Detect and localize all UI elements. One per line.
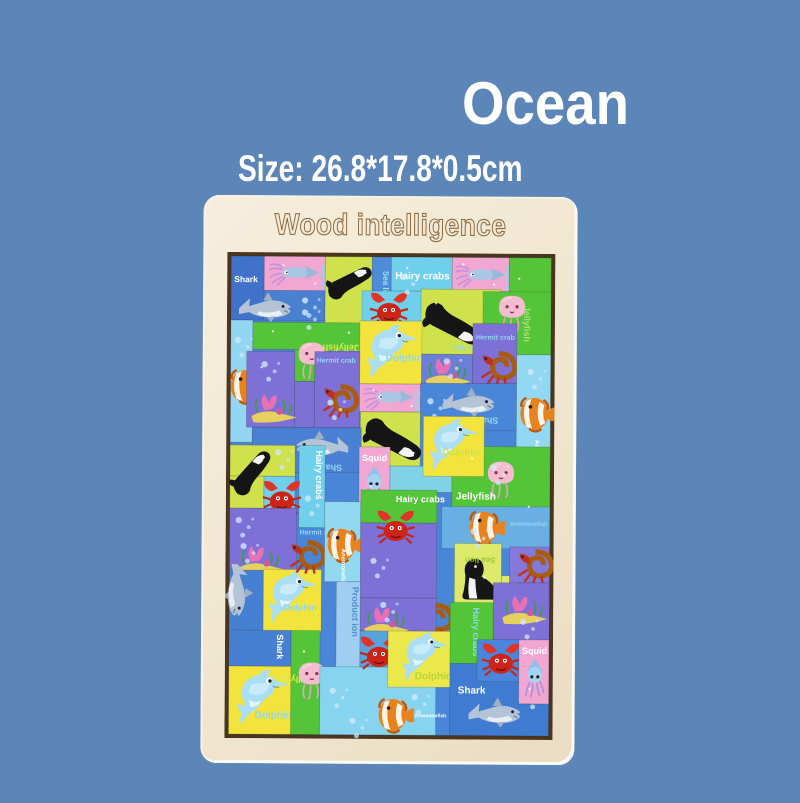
svg-text:Shark: Shark bbox=[275, 634, 285, 660]
svg-text:Jellyfish: Jellyfish bbox=[456, 491, 496, 502]
svg-text:Sea lion: Sea lion bbox=[465, 555, 496, 564]
svg-text:Product ion: Product ion bbox=[350, 587, 360, 637]
svg-text:Dolphin: Dolphin bbox=[442, 447, 479, 458]
svg-text:Dolphin: Dolphin bbox=[415, 671, 452, 682]
svg-text:Hairy crabs: Hairy crabs bbox=[396, 494, 445, 504]
svg-text:Dolphin: Dolphin bbox=[255, 710, 292, 721]
svg-text:Squid: Squid bbox=[362, 453, 387, 463]
svg-text:Dolphin: Dolphin bbox=[386, 353, 423, 364]
svg-text:Hairy crabs: Hairy crabs bbox=[314, 451, 324, 500]
svg-text:Anemonefish: Anemonefish bbox=[510, 522, 548, 528]
svg-text:Hermit crab: Hermit crab bbox=[317, 358, 356, 365]
svg-text:Shark: Shark bbox=[234, 274, 258, 284]
svg-text:Hermit crab: Hermit crab bbox=[476, 335, 515, 342]
svg-text:Shark: Shark bbox=[458, 685, 486, 696]
svg-text:Squid: Squid bbox=[522, 646, 547, 656]
svg-text:Dolphin: Dolphin bbox=[283, 602, 317, 612]
svg-text:Jellyfish: Jellyfish bbox=[522, 306, 532, 342]
